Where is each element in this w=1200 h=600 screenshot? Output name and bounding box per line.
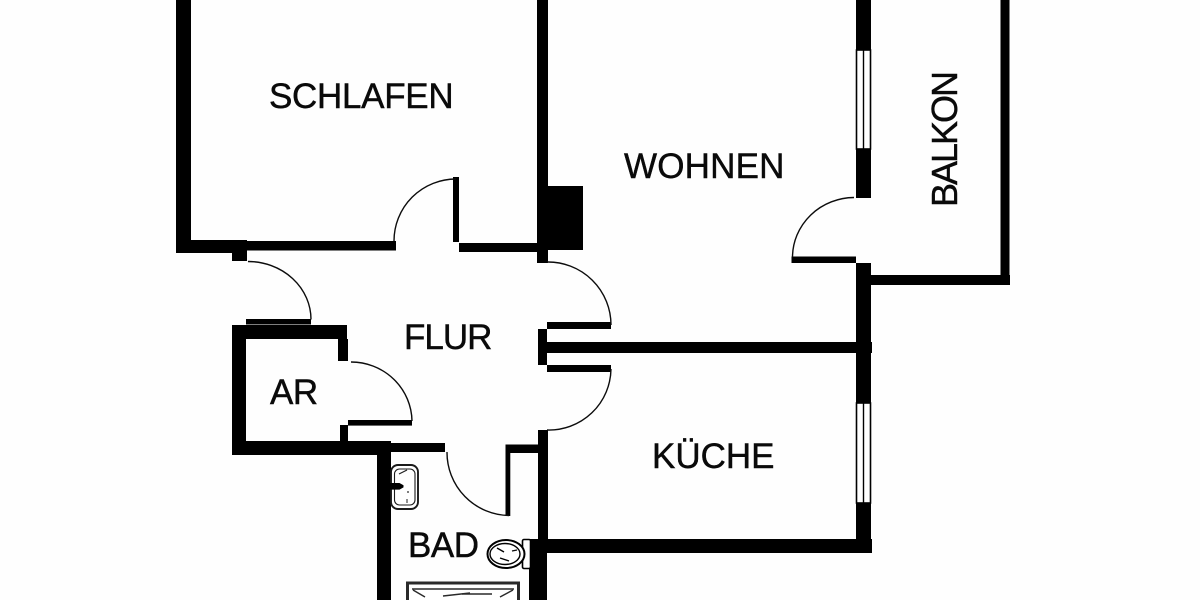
svg-text:BAD: BAD bbox=[408, 526, 478, 565]
svg-text:AR: AR bbox=[270, 373, 318, 412]
svg-text:FLUR: FLUR bbox=[404, 318, 491, 357]
svg-text:WOHNEN: WOHNEN bbox=[624, 147, 785, 186]
svg-text:KÜCHE: KÜCHE bbox=[652, 437, 775, 476]
svg-text:BALKON: BALKON bbox=[924, 73, 965, 207]
svg-text:SCHLAFEN: SCHLAFEN bbox=[269, 77, 453, 116]
